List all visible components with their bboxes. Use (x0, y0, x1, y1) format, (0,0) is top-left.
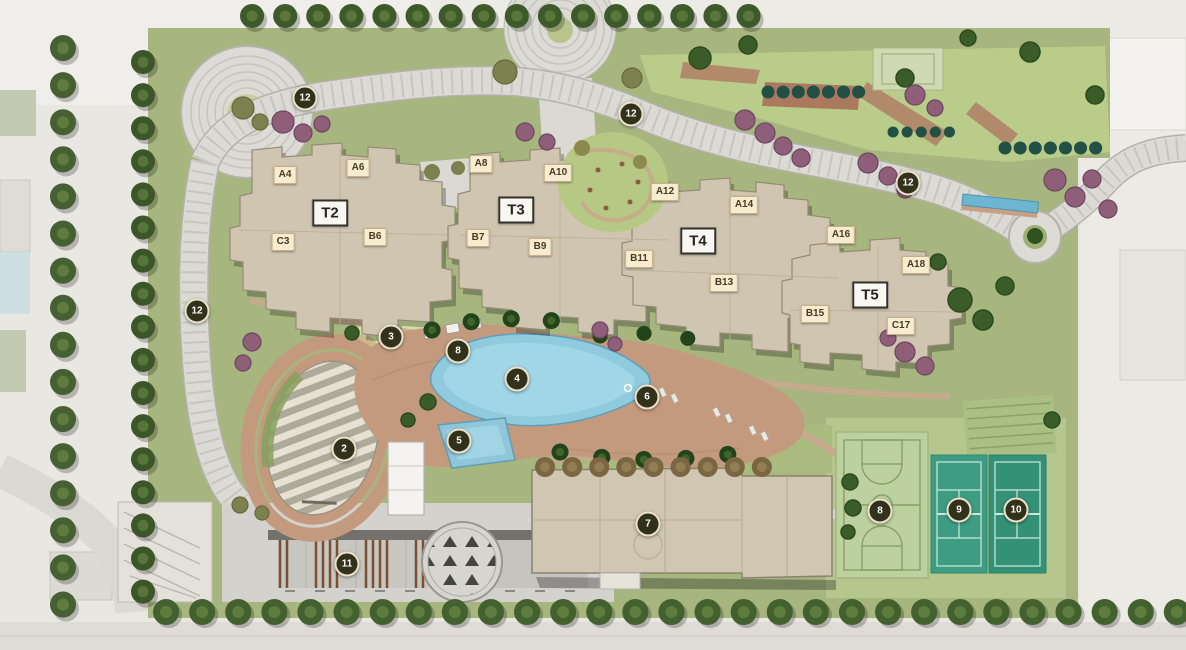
site-plan: A4A6A8A10A12A14A16A18B6B7B9B11B13B15C3C1… (0, 0, 1186, 650)
central-garden (558, 132, 668, 232)
site-plan-artwork (0, 0, 1186, 650)
clubhouse (532, 468, 836, 590)
